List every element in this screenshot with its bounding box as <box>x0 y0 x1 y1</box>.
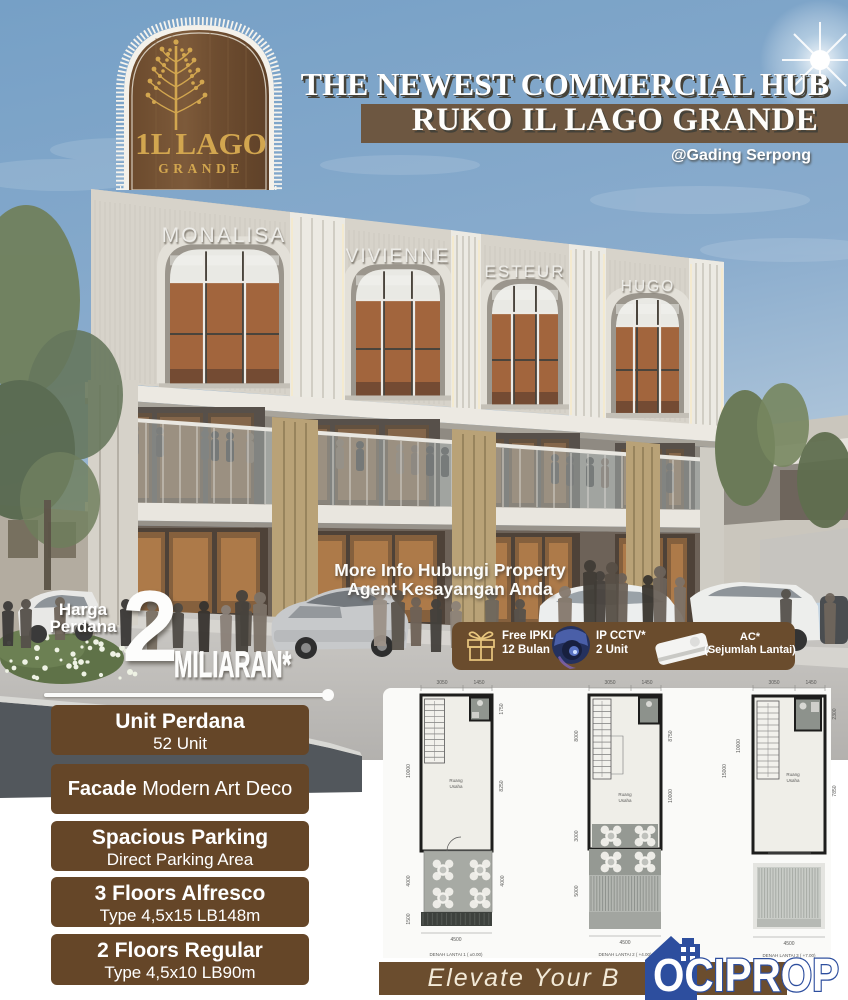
svg-text:OCIPROP: OCIPROP <box>653 949 839 1000</box>
svg-text:ESTEUR: ESTEUR <box>485 262 566 281</box>
svg-text:4500: 4500 <box>450 937 461 943</box>
svg-text:10000: 10000 <box>736 739 742 753</box>
svg-text:DENAH LANTAI 1 ( ±0.00): DENAH LANTAI 1 ( ±0.00) <box>430 952 483 957</box>
svg-text:VIVIENNE: VIVIENNE <box>346 246 451 267</box>
svg-text:Ruang: Ruang <box>449 778 463 783</box>
svg-text:5000: 5000 <box>574 885 580 896</box>
svg-text:1450: 1450 <box>805 680 816 686</box>
svg-text:7850: 7850 <box>832 785 838 796</box>
svg-text:Usaha: Usaha <box>786 778 800 783</box>
svg-text:1750: 1750 <box>499 703 505 714</box>
svg-text:GRANDE: GRANDE <box>158 161 244 176</box>
svg-text:1LLAGO: 1LLAGO <box>135 126 266 161</box>
svg-text:15000: 15000 <box>722 764 728 778</box>
svg-text:Usaha: Usaha <box>618 798 632 803</box>
svg-text:8750: 8750 <box>668 730 674 741</box>
svg-text:3050: 3050 <box>604 680 615 686</box>
svg-text:Usaha: Usaha <box>449 784 463 789</box>
svg-text:3050: 3050 <box>768 680 779 686</box>
svg-text:3000: 3000 <box>574 830 580 841</box>
svg-text:4000: 4000 <box>500 875 506 886</box>
svg-text:8000: 8000 <box>574 730 580 741</box>
svg-text:8250: 8250 <box>499 780 505 791</box>
svg-text:3050: 3050 <box>436 680 447 686</box>
svg-text:HUGO: HUGO <box>621 278 676 295</box>
svg-text:1500: 1500 <box>406 913 412 924</box>
svg-text:MONALISA: MONALISA <box>162 224 287 247</box>
svg-text:Ruang: Ruang <box>786 772 800 777</box>
svg-text:10000: 10000 <box>406 764 412 778</box>
svg-text:10000: 10000 <box>668 789 674 803</box>
svg-text:4000: 4000 <box>406 875 412 886</box>
svg-text:2300: 2300 <box>832 708 838 719</box>
svg-text:1450: 1450 <box>641 680 652 686</box>
svg-text:1450: 1450 <box>473 680 484 686</box>
svg-text:Ruang: Ruang <box>618 792 632 797</box>
